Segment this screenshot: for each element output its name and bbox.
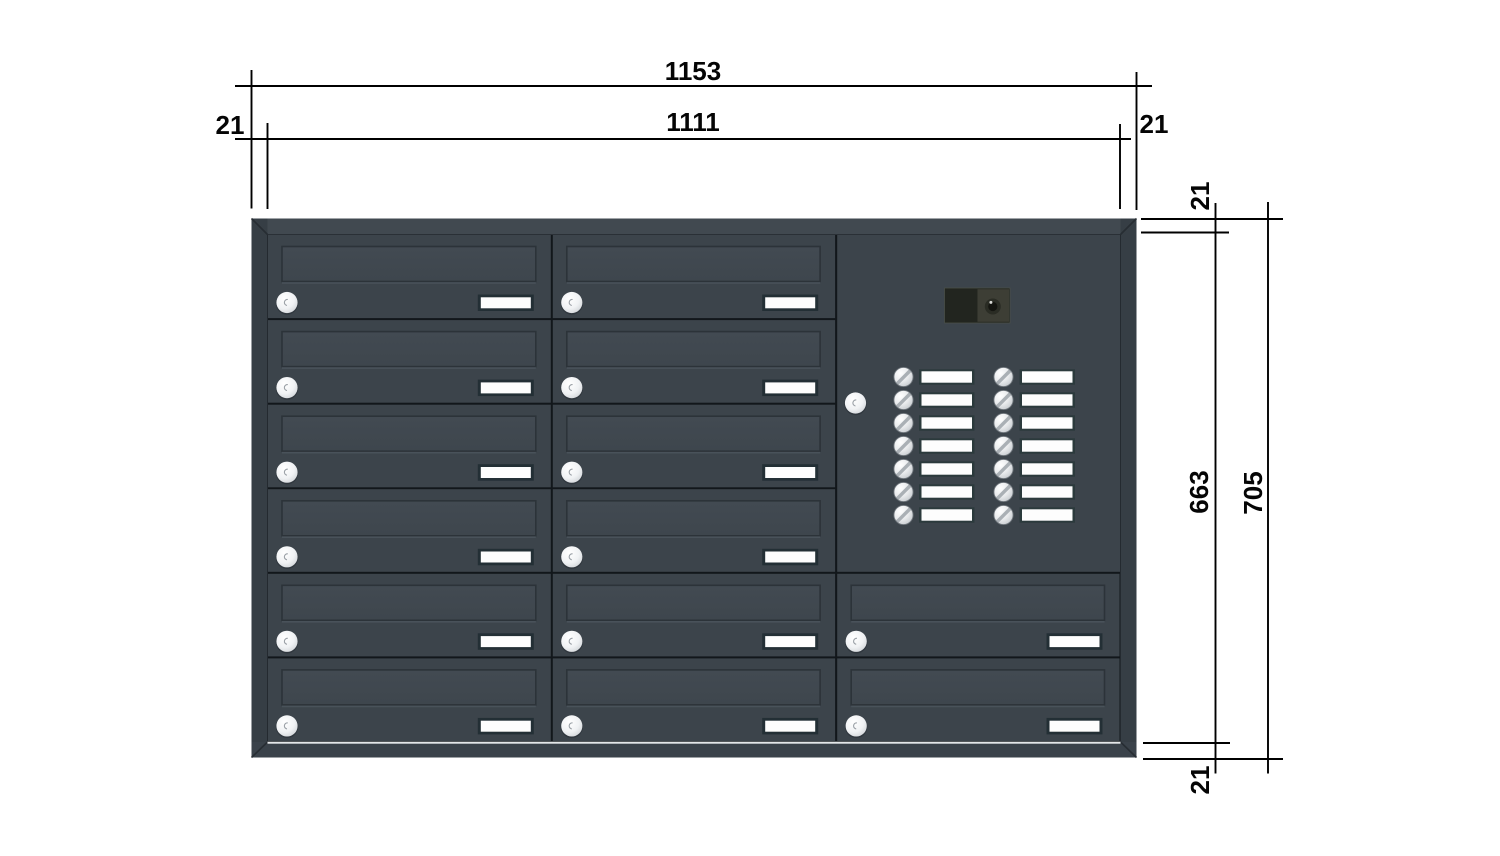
svg-text:21: 21 (1185, 766, 1215, 795)
svg-text:21: 21 (1140, 109, 1169, 139)
svg-text:663: 663 (1184, 470, 1214, 513)
svg-text:1111: 1111 (666, 107, 720, 137)
svg-text:1153: 1153 (665, 56, 721, 86)
svg-text:705: 705 (1238, 471, 1268, 514)
svg-text:21: 21 (216, 110, 245, 140)
svg-text:21: 21 (1185, 182, 1215, 211)
